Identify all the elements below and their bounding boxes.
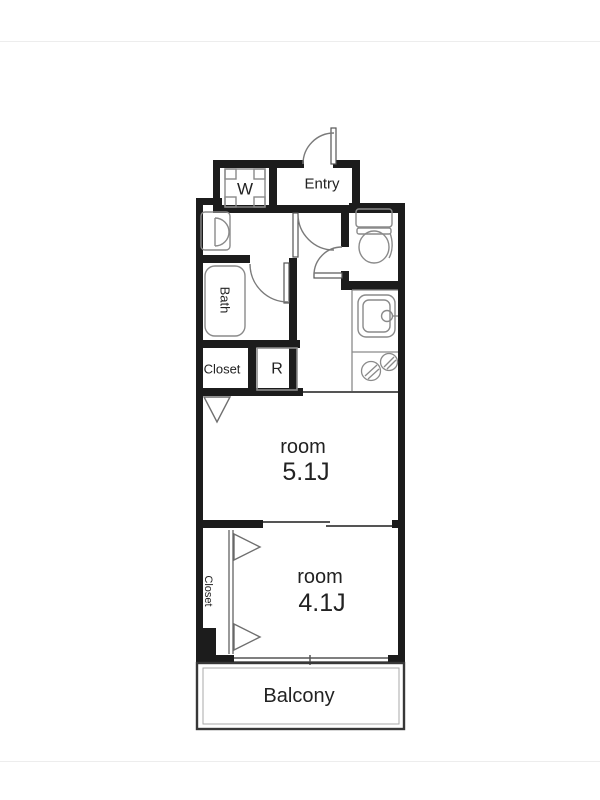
stove-icon (362, 354, 398, 381)
room1-name-label: room (280, 436, 326, 458)
sliding-door (263, 522, 392, 526)
closet-lower-label: Closet (202, 575, 214, 606)
closet2-door-marks (234, 534, 260, 650)
room1-size-label: 5.1J (282, 458, 329, 486)
bath-label: Bath (218, 287, 233, 314)
toilet-door (314, 247, 342, 278)
room1-door-mark (204, 397, 230, 422)
entry-label: Entry (304, 176, 340, 193)
room2-size-label: 4.1J (298, 589, 345, 617)
room2-name-label: room (297, 566, 343, 588)
washer-label: W (237, 180, 253, 199)
kitchen-sink-icon (358, 295, 398, 337)
closet2-front-line (229, 530, 233, 654)
toilet-icon (356, 209, 392, 263)
closet-upper-label: Closet (204, 362, 241, 377)
washbasin-icon (201, 212, 230, 250)
entry-door (303, 128, 336, 164)
bath-door (250, 263, 289, 303)
floorplan-drawing: W Entry Bath Closet R room 5.1J room 4.1… (0, 0, 600, 800)
balcony-label: Balcony (263, 685, 334, 707)
refrigerator-label: R (271, 361, 283, 378)
floorplan-page: W Entry Bath Closet R room 5.1J room 4.1… (0, 0, 600, 800)
kitchen-counter (352, 290, 398, 391)
